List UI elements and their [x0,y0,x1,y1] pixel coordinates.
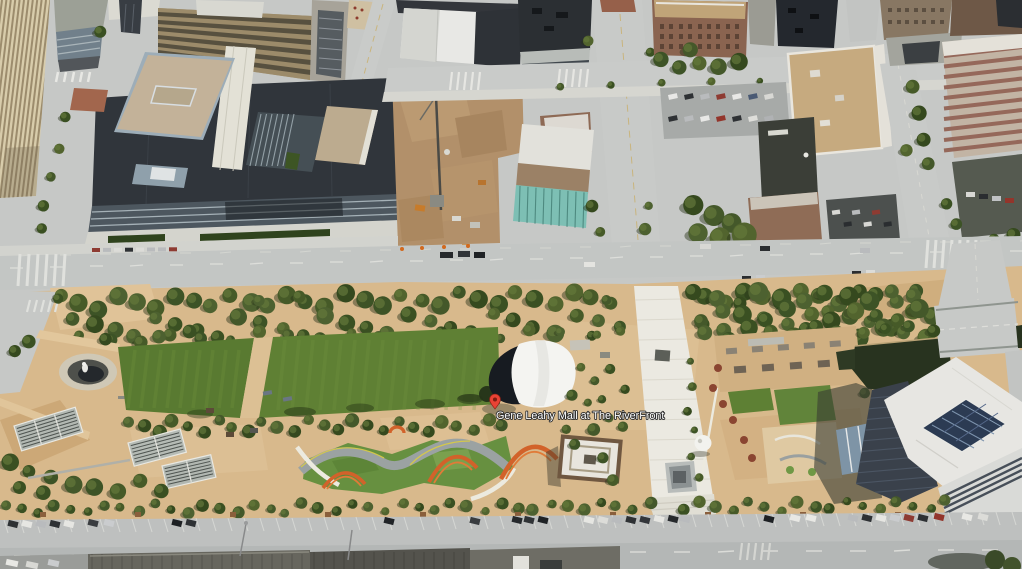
svg-text:Gene Leahy Mall at The RiverFr: Gene Leahy Mall at The RiverFront [496,410,664,422]
